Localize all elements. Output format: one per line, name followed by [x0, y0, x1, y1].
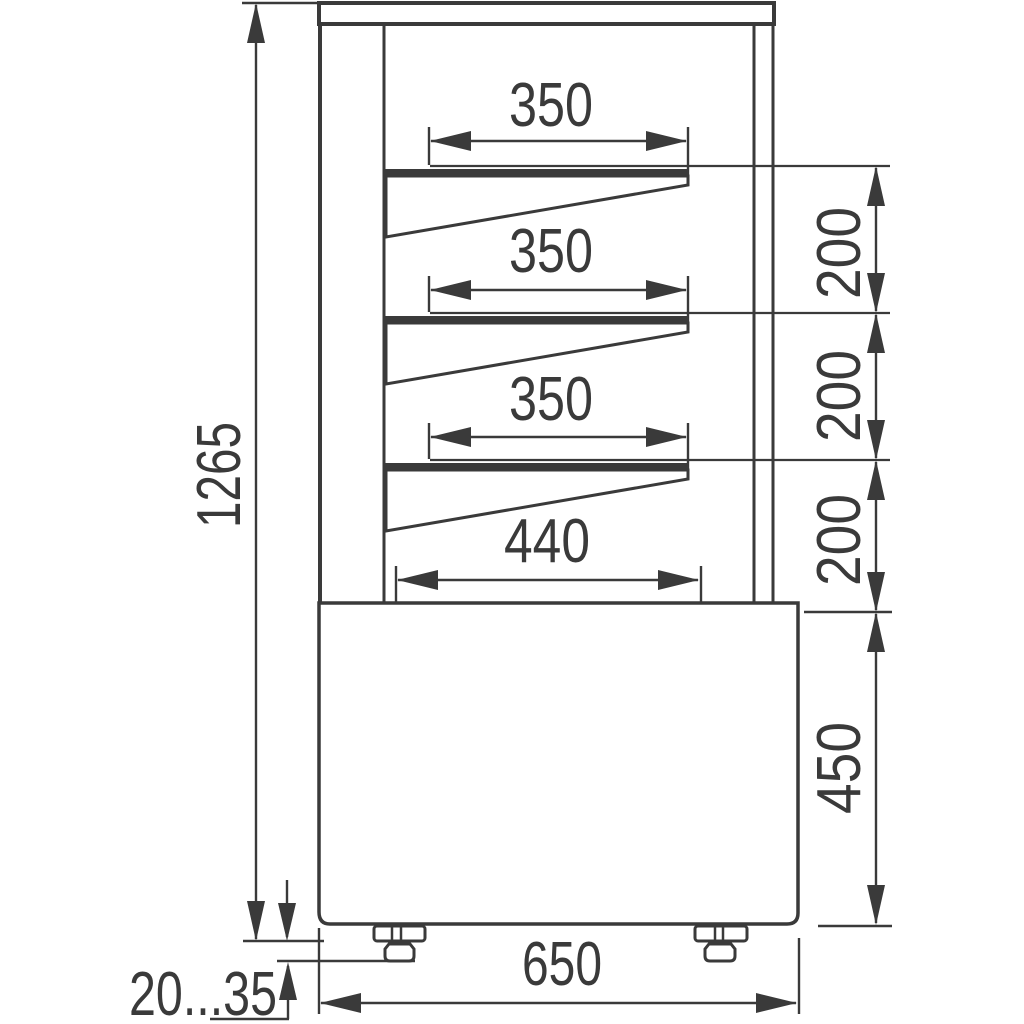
- dim-label-deck-depth: 440: [504, 507, 590, 576]
- arrowhead-left: [430, 131, 471, 151]
- foot-plate: [374, 926, 425, 941]
- dim-label-shelf-width-3: 350: [509, 365, 593, 434]
- arrowhead-right: [756, 993, 797, 1013]
- arrowhead-right: [646, 131, 687, 151]
- arrowhead-left: [397, 570, 438, 590]
- dim-label-base-width: 650: [522, 930, 602, 999]
- dim-label-shelf-spacing-3: 200: [805, 494, 874, 586]
- arrowhead-left: [430, 280, 471, 300]
- arrowhead-up: [279, 962, 297, 1000]
- foot-pad: [705, 944, 735, 961]
- arrowhead-left: [320, 993, 361, 1013]
- dim-shelf-width-3: 350: [429, 365, 688, 479]
- arrowhead-right: [658, 570, 699, 590]
- arrowhead-up: [867, 313, 885, 353]
- technical-drawing: 1265 350 350 350 440: [0, 0, 1024, 1024]
- dim-shelf-spacing-stack: 200 200 200 450: [804, 166, 892, 926]
- lid-canopy: [319, 3, 774, 24]
- base-cabinet: [319, 603, 798, 924]
- dim-label-foot-height-range: 20...35: [129, 960, 277, 1024]
- dim-label-overall-height: 1265: [185, 422, 254, 528]
- dim-label-shelf-spacing-1: 200: [805, 207, 874, 299]
- dim-shelf-width-1: 350: [429, 71, 688, 185]
- arrowhead-right: [646, 427, 687, 447]
- arrowhead-up: [867, 612, 885, 652]
- arrowhead-up: [867, 460, 885, 500]
- dim-label-shelf-width-2: 350: [509, 217, 593, 286]
- dim-label-shelf-width-1: 350: [509, 71, 593, 140]
- adjustable-foot-left: [374, 926, 425, 961]
- arrowhead-down: [278, 903, 296, 941]
- arrowhead-down: [867, 885, 885, 925]
- foot-pad: [385, 944, 414, 961]
- adjustable-foot-right: [695, 926, 747, 961]
- dim-label-shelf-spacing-2: 200: [805, 350, 874, 442]
- dim-label-base-height: 450: [805, 722, 874, 814]
- arrowhead-left: [430, 427, 471, 447]
- arrowhead-up: [867, 166, 885, 206]
- dim-overall-height: 1265: [185, 3, 324, 941]
- foot-plate: [695, 926, 747, 941]
- dim-shelf-width-2: 350: [429, 217, 688, 332]
- arrowhead-up: [247, 3, 265, 43]
- arrowhead-right: [646, 280, 687, 300]
- arrowhead-down: [247, 901, 265, 941]
